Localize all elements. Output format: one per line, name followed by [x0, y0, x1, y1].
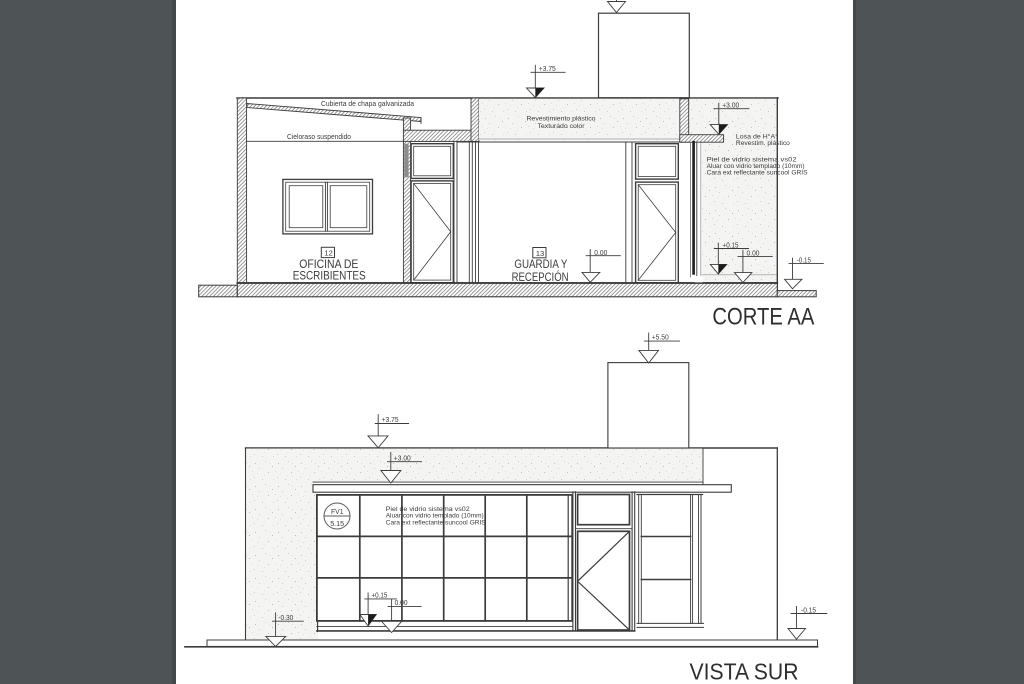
svg-text:Cara ext reflectante suncool G: Cara ext reflectante suncool GRIS: [707, 170, 809, 177]
svg-text:Revestimiento plástico: Revestimiento plástico: [527, 115, 596, 122]
svg-text:+3.75: +3.75: [382, 417, 399, 424]
svg-text:Revestim. plástico: Revestim. plástico: [736, 140, 790, 147]
svg-text:0.00: 0.00: [747, 251, 760, 258]
svg-text:RECEPCIÓN: RECEPCIÓN: [512, 269, 569, 284]
svg-text:-0.15: -0.15: [797, 257, 811, 264]
svg-text:VISTA SUR: VISTA SUR: [690, 659, 799, 684]
svg-text:5.15: 5.15: [330, 519, 344, 528]
svg-text:-0.15: -0.15: [801, 607, 816, 614]
svg-text:Cara ext reflectante suncool G: Cara ext reflectante suncool GRIS: [386, 519, 487, 526]
svg-text:+0.15: +0.15: [723, 242, 739, 249]
svg-text:+3.00: +3.00: [394, 455, 411, 462]
svg-text:+3.00: +3.00: [722, 102, 739, 109]
svg-text:CORTE AA: CORTE AA: [712, 304, 814, 331]
svg-text:Texturado color: Texturado color: [538, 123, 586, 130]
svg-text:-0.30: -0.30: [278, 615, 293, 622]
svg-text:GUARDIA Y: GUARDIA Y: [514, 257, 567, 271]
svg-text:ESCRIBIENTES: ESCRIBIENTES: [293, 268, 366, 282]
svg-text:Cubierta de chapa galvanizada: Cubierta de chapa galvanizada: [321, 101, 414, 108]
svg-text:+5.50: +5.50: [652, 335, 669, 342]
svg-text:FV1: FV1: [331, 507, 344, 516]
svg-text:+0.15: +0.15: [371, 593, 387, 600]
svg-text:0.00: 0.00: [395, 600, 408, 607]
svg-text:+3.75: +3.75: [539, 66, 556, 73]
svg-text:Cieloraso suspendido: Cieloraso suspendido: [287, 134, 351, 141]
svg-text:0.00: 0.00: [594, 250, 607, 257]
